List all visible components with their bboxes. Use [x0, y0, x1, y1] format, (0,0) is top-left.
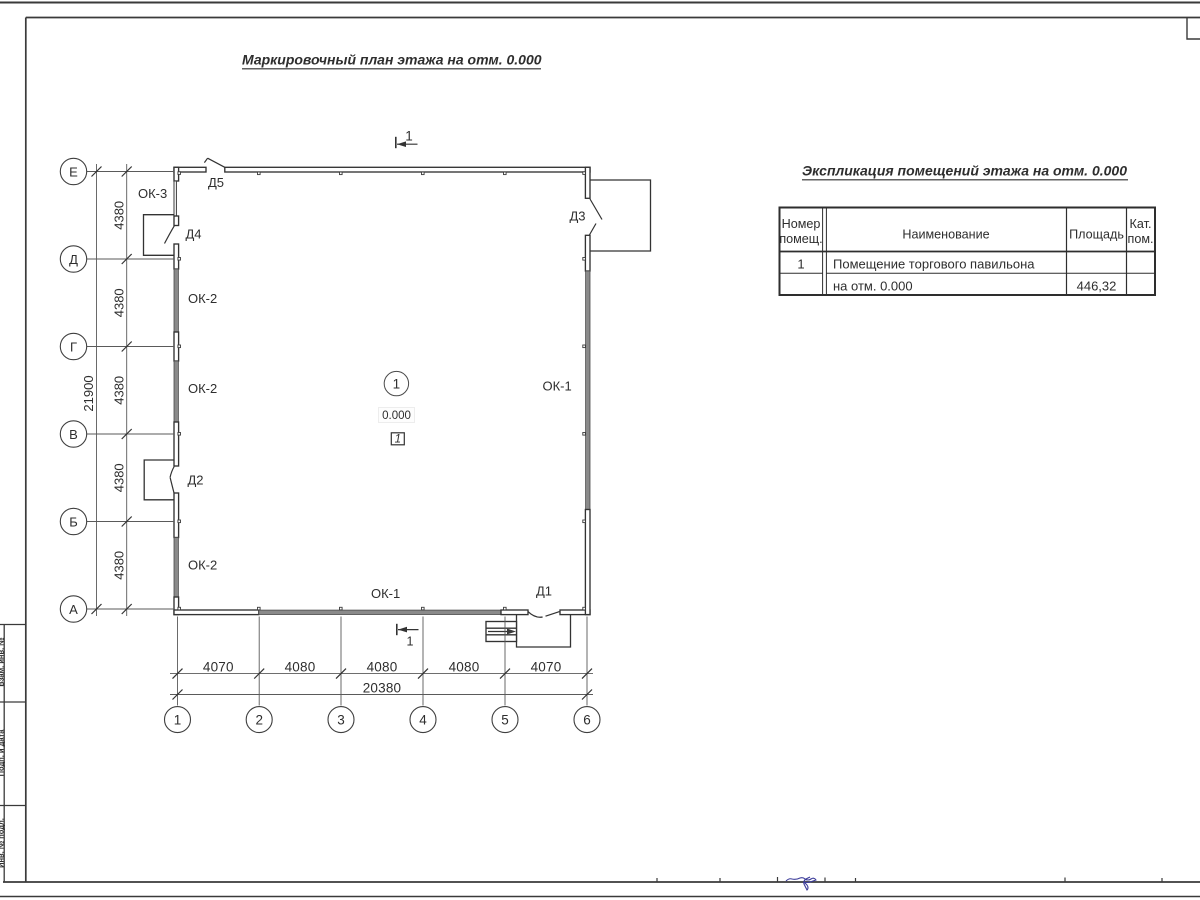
- svg-text:Г: Г: [70, 339, 77, 354]
- svg-text:Подп. и дата: Подп. и дата: [0, 729, 6, 777]
- svg-text:Д2: Д2: [188, 473, 204, 488]
- svg-text:Д5: Д5: [208, 175, 224, 190]
- svg-text:Площадь: Площадь: [1069, 228, 1124, 242]
- svg-text:Д1: Д1: [536, 584, 552, 599]
- svg-text:ОК-1: ОК-1: [371, 586, 400, 601]
- svg-text:0.000: 0.000: [382, 410, 411, 422]
- svg-text:ОК-2: ОК-2: [188, 291, 217, 306]
- svg-text:4070: 4070: [531, 660, 562, 675]
- svg-text:1: 1: [395, 434, 401, 446]
- svg-text:Маркировочный план этажа на от: Маркировочный план этажа на отм. 0.000: [242, 52, 542, 68]
- svg-text:А: А: [69, 602, 78, 617]
- svg-text:Б: Б: [69, 514, 78, 529]
- svg-text:помещ.: помещ.: [779, 232, 822, 246]
- svg-text:4080: 4080: [449, 660, 480, 675]
- svg-text:Д: Д: [69, 252, 78, 267]
- svg-text:Экспликация помещений этажа на: Экспликация помещений этажа на отм. 0.00…: [802, 163, 1127, 179]
- svg-text:Помещение торгового павильона: Помещение торгового павильона: [833, 257, 1035, 272]
- svg-text:ОК-1: ОК-1: [543, 379, 572, 394]
- svg-text:21900: 21900: [81, 375, 96, 411]
- svg-text:ОК-3: ОК-3: [138, 186, 167, 201]
- svg-text:4380: 4380: [112, 463, 127, 492]
- svg-text:1: 1: [405, 129, 413, 144]
- svg-text:ОК-2: ОК-2: [188, 381, 217, 396]
- svg-text:Д4: Д4: [186, 227, 202, 242]
- svg-text:4070: 4070: [203, 660, 234, 675]
- svg-text:4380: 4380: [112, 376, 127, 405]
- svg-text:5: 5: [501, 712, 509, 727]
- svg-text:1: 1: [393, 376, 401, 391]
- svg-text:4080: 4080: [367, 660, 398, 675]
- svg-text:3: 3: [337, 712, 345, 727]
- svg-text:Номер: Номер: [782, 217, 821, 231]
- svg-text:на отм. 0.000: на отм. 0.000: [833, 279, 913, 294]
- svg-text:1: 1: [174, 712, 182, 727]
- svg-text:4: 4: [419, 712, 427, 727]
- svg-text:Е: Е: [69, 164, 78, 179]
- svg-text:ОК-2: ОК-2: [188, 558, 217, 573]
- svg-text:4080: 4080: [285, 660, 316, 675]
- svg-text:4380: 4380: [112, 288, 127, 317]
- svg-text:20380: 20380: [363, 680, 402, 695]
- svg-text:Кат.: Кат.: [1130, 217, 1152, 231]
- svg-text:Инв. № подл.: Инв. № подл.: [0, 818, 6, 868]
- svg-text:4380: 4380: [112, 201, 127, 230]
- svg-text:Взам. инв. №: Взам. инв. №: [0, 637, 6, 686]
- svg-text:6: 6: [583, 712, 591, 727]
- svg-text:1: 1: [407, 635, 414, 649]
- svg-text:446,32: 446,32: [1077, 279, 1117, 294]
- svg-text:Д3: Д3: [570, 209, 586, 224]
- svg-text:4380: 4380: [112, 551, 127, 580]
- svg-text:2: 2: [255, 712, 263, 727]
- svg-text:В: В: [69, 427, 78, 442]
- svg-text:пом.: пом.: [1128, 232, 1154, 246]
- svg-text:Наименование: Наименование: [902, 228, 989, 242]
- svg-text:1: 1: [797, 257, 804, 272]
